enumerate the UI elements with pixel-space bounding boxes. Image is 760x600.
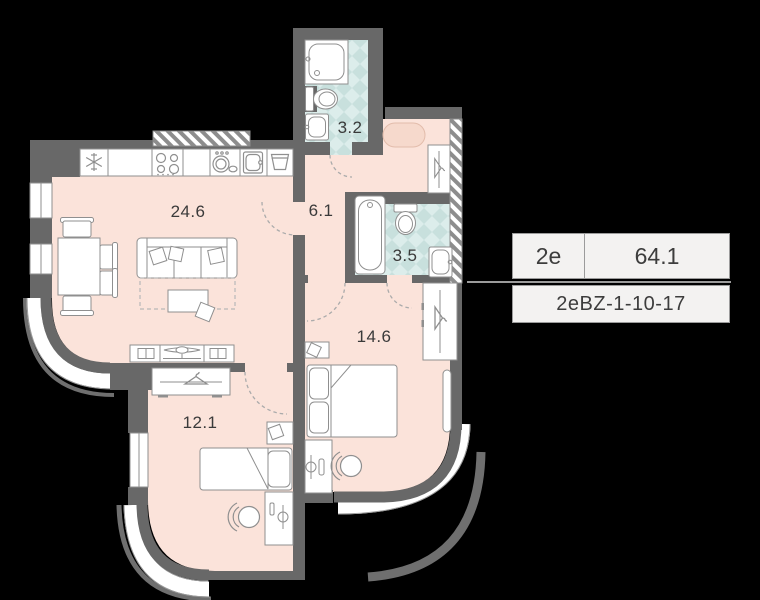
sofa bbox=[137, 238, 237, 278]
bedside-table bbox=[305, 342, 329, 358]
shower-tray bbox=[305, 40, 348, 84]
tv-console bbox=[130, 345, 234, 362]
pillow bbox=[310, 402, 329, 433]
window bbox=[130, 433, 148, 487]
pillow bbox=[310, 368, 329, 399]
chair bbox=[113, 269, 118, 298]
chair bbox=[61, 311, 94, 316]
hatched-wall bbox=[153, 131, 250, 146]
pillow bbox=[268, 451, 290, 487]
room-area-label-bathroom: 3.2 bbox=[338, 118, 363, 137]
toilet bbox=[306, 87, 338, 111]
unit-info-card: 2e 64.1 bbox=[512, 233, 730, 279]
bedside-table bbox=[267, 422, 293, 444]
door-opening bbox=[245, 363, 287, 372]
callout-line bbox=[467, 281, 731, 283]
toilet bbox=[394, 204, 417, 235]
room-area-label-hallway: 6.1 bbox=[309, 201, 334, 220]
cushion bbox=[168, 246, 183, 261]
doormat bbox=[383, 123, 425, 147]
room-area-label-living: 24.6 bbox=[171, 202, 206, 221]
door-opening bbox=[387, 275, 412, 283]
single-bed bbox=[200, 448, 292, 490]
room-area-label-master-bedroom: 14.6 bbox=[357, 327, 392, 346]
floor-plan-page: 24.6 6.1 3.2 3.5 14.6 12.1 2e 64.1 2eBZ-… bbox=[0, 0, 760, 600]
wardrobe bbox=[422, 283, 458, 360]
wardrobe bbox=[152, 368, 230, 398]
kitchen-sink-icon bbox=[244, 152, 263, 173]
bathroom-sink bbox=[305, 114, 328, 140]
window bbox=[30, 244, 52, 274]
chair bbox=[63, 296, 91, 312]
unit-code-cell: 2eBZ-1-10-17 bbox=[512, 285, 730, 323]
cushion bbox=[208, 248, 225, 265]
door-opening bbox=[307, 275, 345, 283]
room-area-label-ensuite: 3.5 bbox=[393, 246, 418, 265]
open-book-icon bbox=[210, 349, 226, 359]
unit-type-cell: 2e bbox=[513, 234, 585, 278]
unit-area-cell: 64.1 bbox=[585, 234, 729, 278]
chair bbox=[113, 243, 118, 272]
desk bbox=[305, 440, 332, 493]
double-bed bbox=[307, 365, 397, 437]
radiator bbox=[443, 370, 451, 432]
room-area-label-second-bedroom: 12.1 bbox=[183, 413, 218, 432]
desk bbox=[265, 492, 293, 545]
bathtub bbox=[355, 196, 385, 274]
window bbox=[30, 183, 52, 218]
chair bbox=[63, 221, 91, 237]
door-opening bbox=[330, 142, 352, 155]
open-book-icon bbox=[138, 349, 154, 359]
entry-closet bbox=[428, 145, 450, 193]
door-opening bbox=[293, 202, 305, 235]
bathroom-sink bbox=[429, 247, 452, 277]
